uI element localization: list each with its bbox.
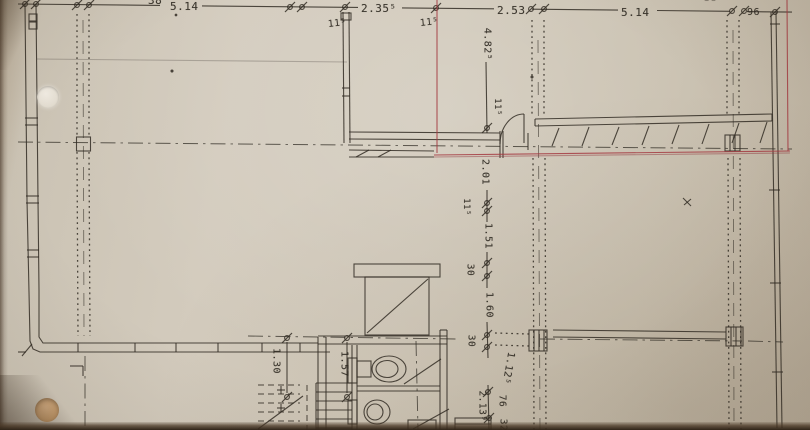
dim-label-wall-115-b: 11⁵: [419, 16, 439, 29]
hole-punch-bottom: [35, 398, 59, 422]
columns: [77, 135, 744, 351]
floorplan-linework: [0, 0, 810, 430]
stairs: [258, 383, 352, 430]
exterior-walls: [18, 4, 783, 428]
dim-label-151: 1.51: [483, 223, 494, 249]
dim-label-253: 2.53: [497, 4, 526, 17]
dim-label-115-mid: 11⁵: [461, 198, 471, 216]
dim-label-76: 76: [497, 395, 508, 407]
dim-label-2355: 2.35⁵: [361, 2, 397, 15]
dim-label-top-left-cut: 38: [148, 0, 162, 7]
dim-label-wall-115-a: 11⁵: [327, 17, 347, 30]
dim-label-201: 2.01: [480, 159, 491, 185]
hole-punch-top: [37, 86, 59, 108]
dim-label-32: 32: [498, 419, 509, 430]
dim-label-30-b: 30: [466, 335, 477, 347]
dimension-line-top: [18, 4, 792, 12]
dim-label-115-door: 11⁵: [492, 98, 502, 116]
dim-label-130: 1.30: [271, 348, 282, 374]
dim-label-4825: 4.82⁵: [482, 28, 493, 61]
dim-label-top-right-cut: 38: [704, 0, 717, 4]
interior-walls: [37, 12, 726, 430]
chimney-shaft: [354, 264, 440, 335]
specks: [171, 14, 691, 206]
scanned-floorplan-photo: 38 5.14 2.35⁵ 2.53 5.14 96 38 11⁵ 11⁵ 4.…: [0, 0, 810, 430]
centerlines-dashdot: [18, 142, 792, 430]
bench-hatched: [535, 114, 772, 146]
dim-label-30-a: 30: [465, 264, 476, 276]
dim-label-2139: 2.13⁹: [477, 390, 488, 421]
dim-label-514-left: 5.14: [170, 0, 199, 13]
dim-label-514-right: 5.14: [621, 6, 650, 19]
dim-label-157: 1.57: [339, 351, 350, 377]
dim-label-96: 96: [747, 7, 760, 18]
wall-axes-dotted: [77, 14, 741, 430]
dim-label-160: 1.60: [484, 292, 495, 318]
dimension-chain-vertical: [287, 62, 489, 430]
door-swing: [500, 114, 528, 158]
